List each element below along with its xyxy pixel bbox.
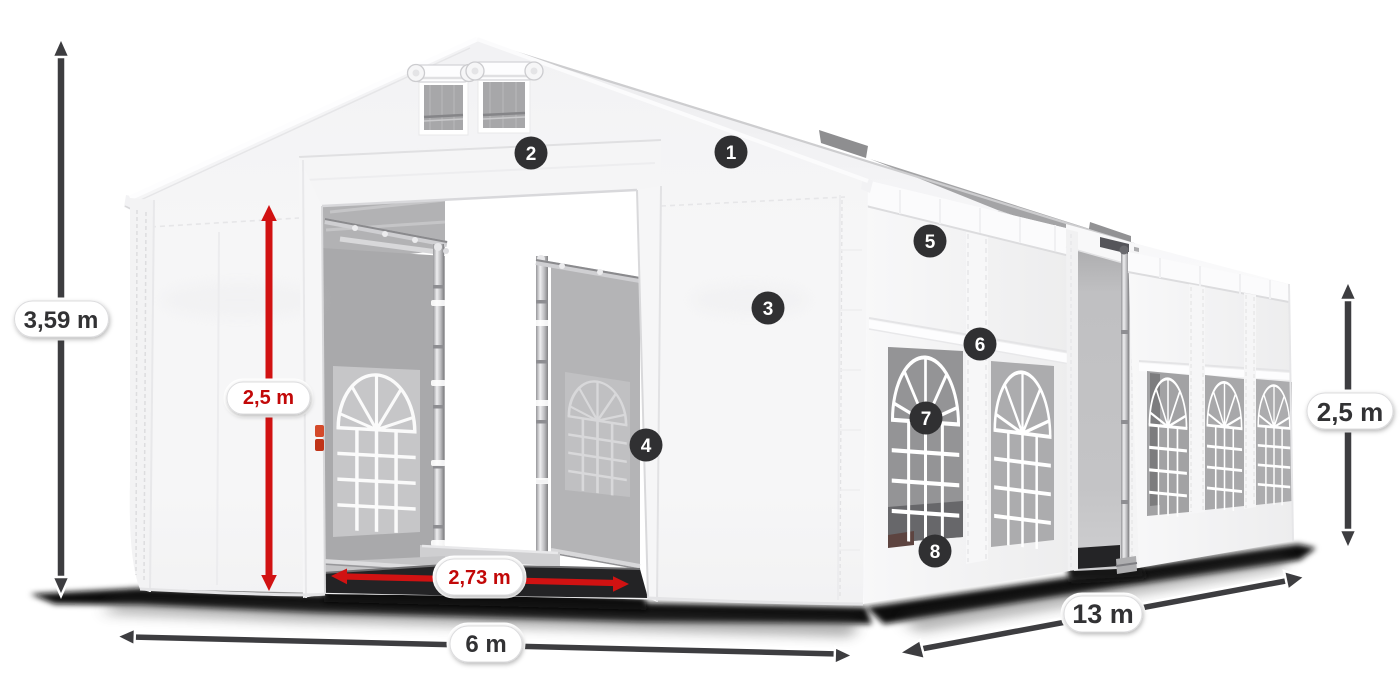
svg-text:3,59 m: 3,59 m [24, 307, 99, 334]
svg-text:13 m: 13 m [1072, 599, 1134, 629]
svg-text:1: 1 [726, 143, 737, 164]
svg-text:6: 6 [975, 335, 986, 356]
svg-text:5: 5 [925, 232, 936, 253]
svg-text:6 m: 6 m [465, 631, 506, 658]
svg-text:3: 3 [763, 299, 774, 320]
svg-text:2: 2 [526, 144, 537, 165]
svg-text:8: 8 [930, 542, 941, 563]
svg-text:7: 7 [921, 409, 932, 430]
svg-text:4: 4 [641, 436, 652, 457]
svg-text:2,73 m: 2,73 m [448, 567, 510, 589]
svg-text:2,5 m: 2,5 m [1317, 397, 1384, 427]
svg-text:2,5 m: 2,5 m [243, 387, 294, 409]
